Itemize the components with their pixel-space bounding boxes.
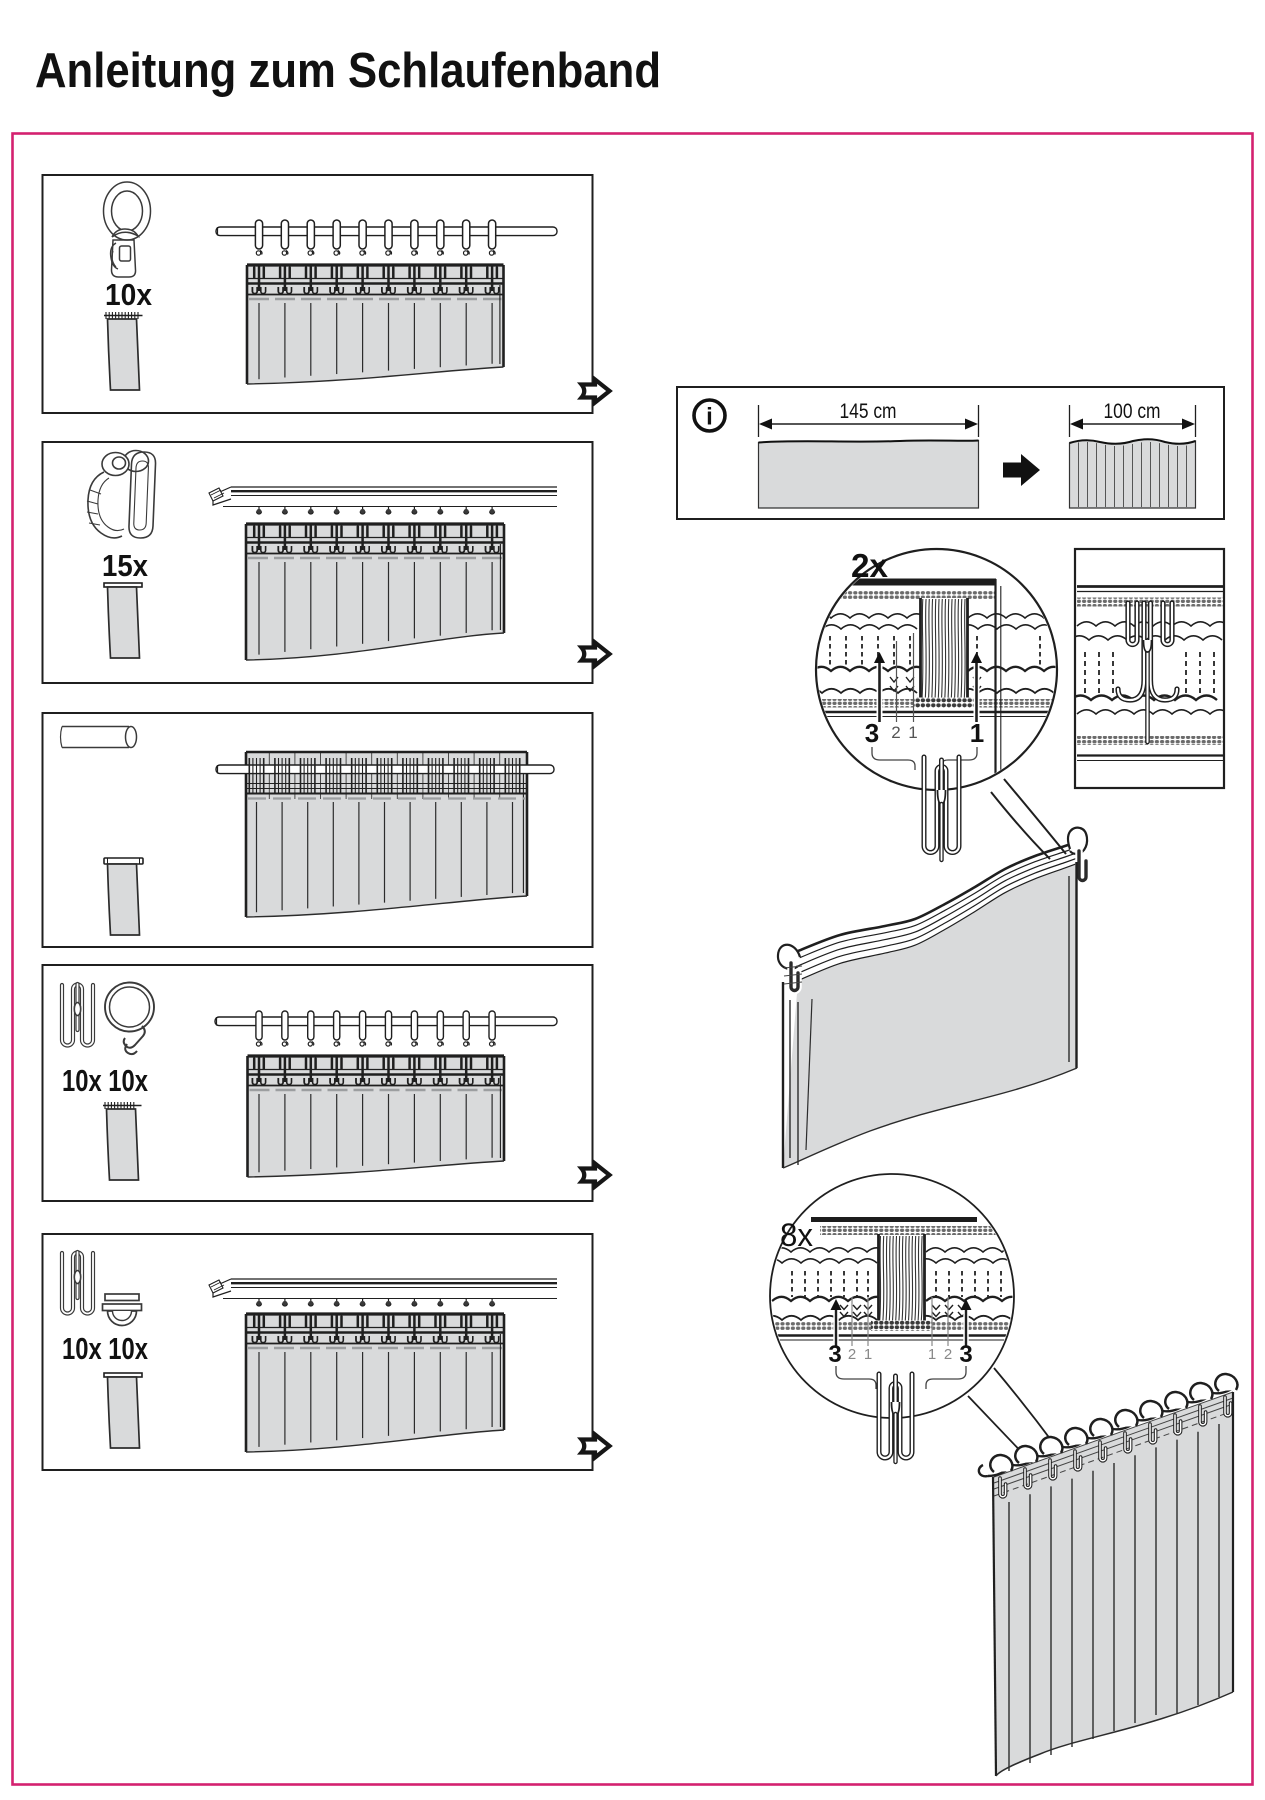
svg-text:2: 2: [848, 1346, 856, 1363]
svg-text:15x: 15x: [102, 548, 149, 583]
svg-text:1: 1: [928, 1346, 936, 1363]
svg-text:10x 10x: 10x 10x: [62, 1331, 149, 1366]
svg-text:1: 1: [908, 723, 917, 742]
svg-text:2: 2: [891, 723, 900, 742]
svg-text:2: 2: [944, 1346, 952, 1363]
svg-text:10x: 10x: [105, 277, 153, 312]
svg-text:2x: 2x: [851, 547, 889, 584]
svg-text:3: 3: [865, 718, 879, 748]
svg-text:100 cm: 100 cm: [1104, 400, 1161, 423]
svg-text:10x 10x: 10x 10x: [62, 1063, 149, 1098]
svg-text:3: 3: [828, 1341, 841, 1368]
svg-text:3: 3: [959, 1341, 972, 1368]
svg-text:i: i: [706, 404, 713, 431]
svg-text:1: 1: [864, 1346, 872, 1363]
svg-text:Anleitung zum Schlaufenband: Anleitung zum Schlaufenband: [35, 44, 661, 98]
svg-text:1: 1: [970, 718, 984, 748]
svg-text:145 cm: 145 cm: [840, 400, 897, 423]
svg-text:8x: 8x: [780, 1217, 813, 1253]
